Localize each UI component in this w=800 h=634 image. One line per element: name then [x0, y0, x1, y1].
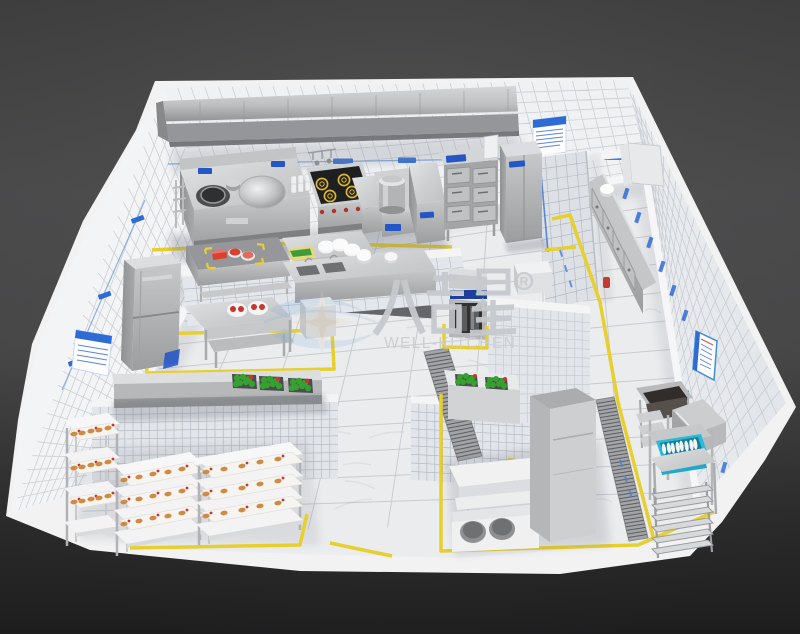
- svg-text:R: R: [520, 275, 529, 289]
- svg-text:WELL-KITCHEN: WELL-KITCHEN: [384, 335, 516, 352]
